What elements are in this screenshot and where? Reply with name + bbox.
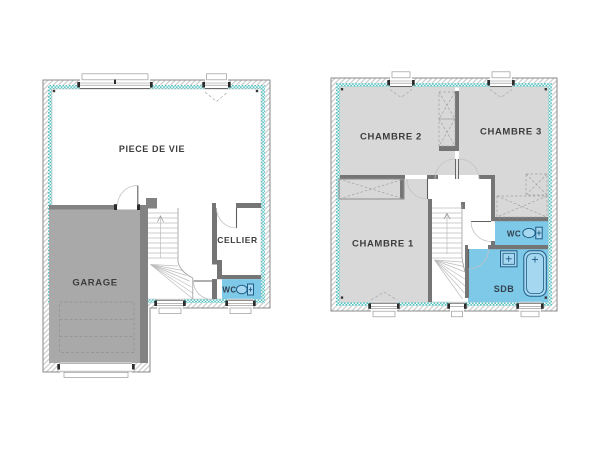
corner-mark	[545, 88, 547, 90]
garage-entry-door	[57, 363, 134, 378]
room-label-chambre-3: CHAMBRE 3	[480, 127, 542, 138]
room-label-chambre-1: CHAMBRE 1	[352, 239, 414, 250]
toilet-icon	[523, 227, 542, 239]
corner-mark	[545, 296, 547, 298]
corner-mark	[256, 90, 258, 92]
room-label-wc-ground: WC	[222, 286, 236, 295]
corner-mark	[341, 296, 343, 298]
toilet-icon	[237, 284, 254, 295]
ground-floor-plan: PIECE DE VIE GARAGE CELLIER WC	[43, 74, 270, 378]
room-label-sdb: SDB	[494, 284, 515, 294]
corner-mark	[53, 90, 55, 92]
floor-plans-canvas: PIECE DE VIE GARAGE CELLIER WC	[0, 0, 600, 450]
window-hall-south	[154, 299, 185, 314]
floor-plan-page: PIECE DE VIE GARAGE CELLIER WC	[0, 0, 600, 450]
corner-mark	[341, 88, 343, 90]
room-label-cellier: CELLIER	[217, 235, 258, 245]
window-sdb	[516, 302, 543, 317]
sink-icon	[501, 251, 518, 267]
window-wc-south	[225, 299, 255, 314]
room-label-garage: GARAGE	[72, 278, 117, 289]
window-living-north	[77, 74, 152, 90]
room-label-chambre-2: CHAMBRE 2	[360, 132, 422, 143]
bathtub-icon	[524, 251, 547, 296]
room-label-piece-de-vie: PIECE DE VIE	[119, 144, 185, 154]
room-label-wc-first: WC	[507, 230, 521, 239]
window-stairwell	[447, 302, 466, 317]
first-floor-plan: CHAMBRE 2 CHAMBRE 3 CHAMBRE 1 WC SDB	[331, 72, 557, 317]
